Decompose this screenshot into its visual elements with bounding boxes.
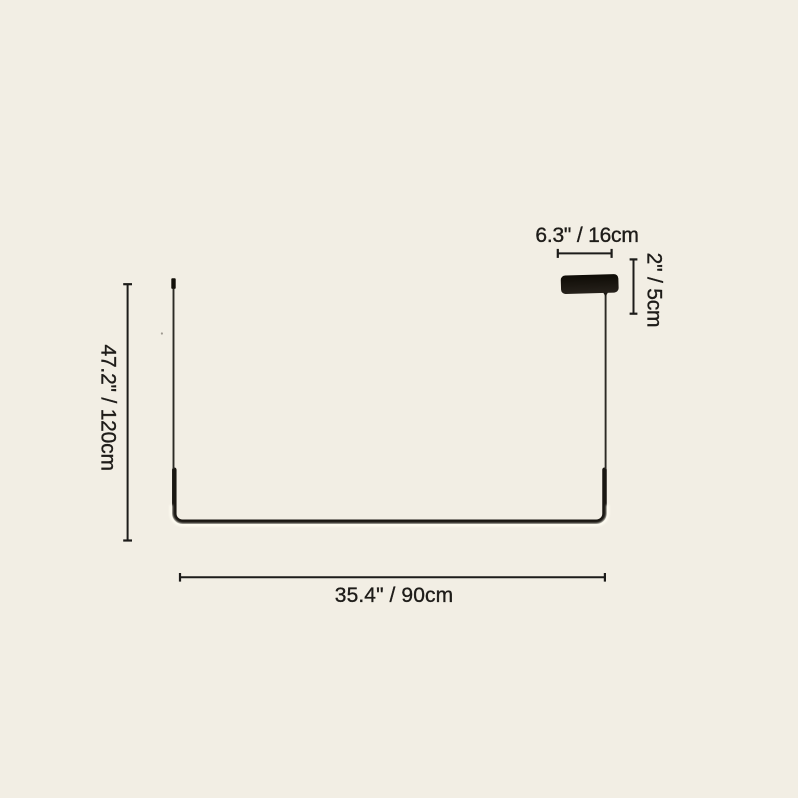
svg-text:6.3" / 16cm: 6.3" / 16cm <box>535 224 638 247</box>
svg-text:2" / 5cm: 2" / 5cm <box>643 253 666 328</box>
svg-text:47.2" / 120cm: 47.2" / 120cm <box>97 344 120 470</box>
svg-text:35.4" / 90cm: 35.4" / 90cm <box>335 584 453 607</box>
